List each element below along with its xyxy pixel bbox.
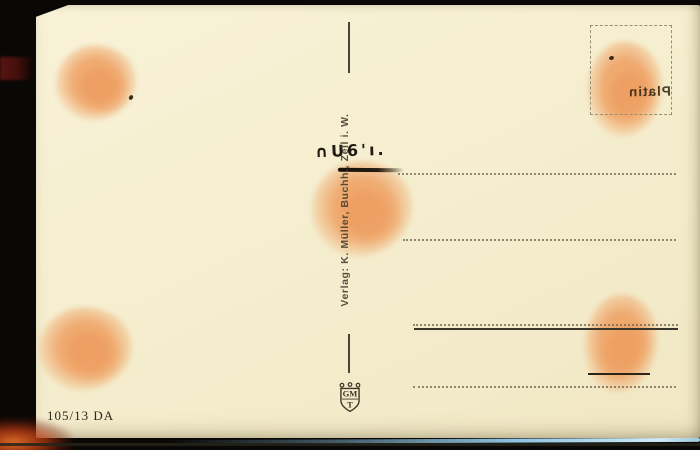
publisher-imprint: Verlag: K. Müller, Buchh., Zell i. W. <box>339 85 353 335</box>
center-divider-top <box>348 22 350 73</box>
address-line-dotted <box>403 239 676 241</box>
smudge-stain-right <box>581 292 662 396</box>
stamp-box <box>590 25 672 115</box>
smudge-stain-center <box>311 161 413 257</box>
stamp-box-mirrored-text: Platin <box>628 84 671 100</box>
smudge-stain-top-left <box>55 45 137 121</box>
dark-edge-strip <box>0 443 700 446</box>
red-light-streak <box>0 57 30 80</box>
address-line-dotted <box>398 173 676 175</box>
address-line-dotted <box>413 324 678 326</box>
photo-background: Platin ∩U6'ı. Verlag: K. Müller, Buchh.,… <box>0 0 700 450</box>
address-line-solid-short <box>588 373 650 375</box>
smudge-stain-bottom-left <box>38 307 133 391</box>
emblem-letter-bottom: T <box>347 400 353 410</box>
address-line-dotted <box>413 386 676 388</box>
address-line-solid <box>414 328 678 330</box>
ink-speck <box>128 94 134 100</box>
emblem-letters-top: GM <box>343 388 358 398</box>
center-divider-bottom <box>348 334 350 373</box>
publisher-emblem-icon: GM T <box>337 382 363 414</box>
postcard: Platin ∩U6'ı. Verlag: K. Müller, Buchh.,… <box>36 5 700 438</box>
